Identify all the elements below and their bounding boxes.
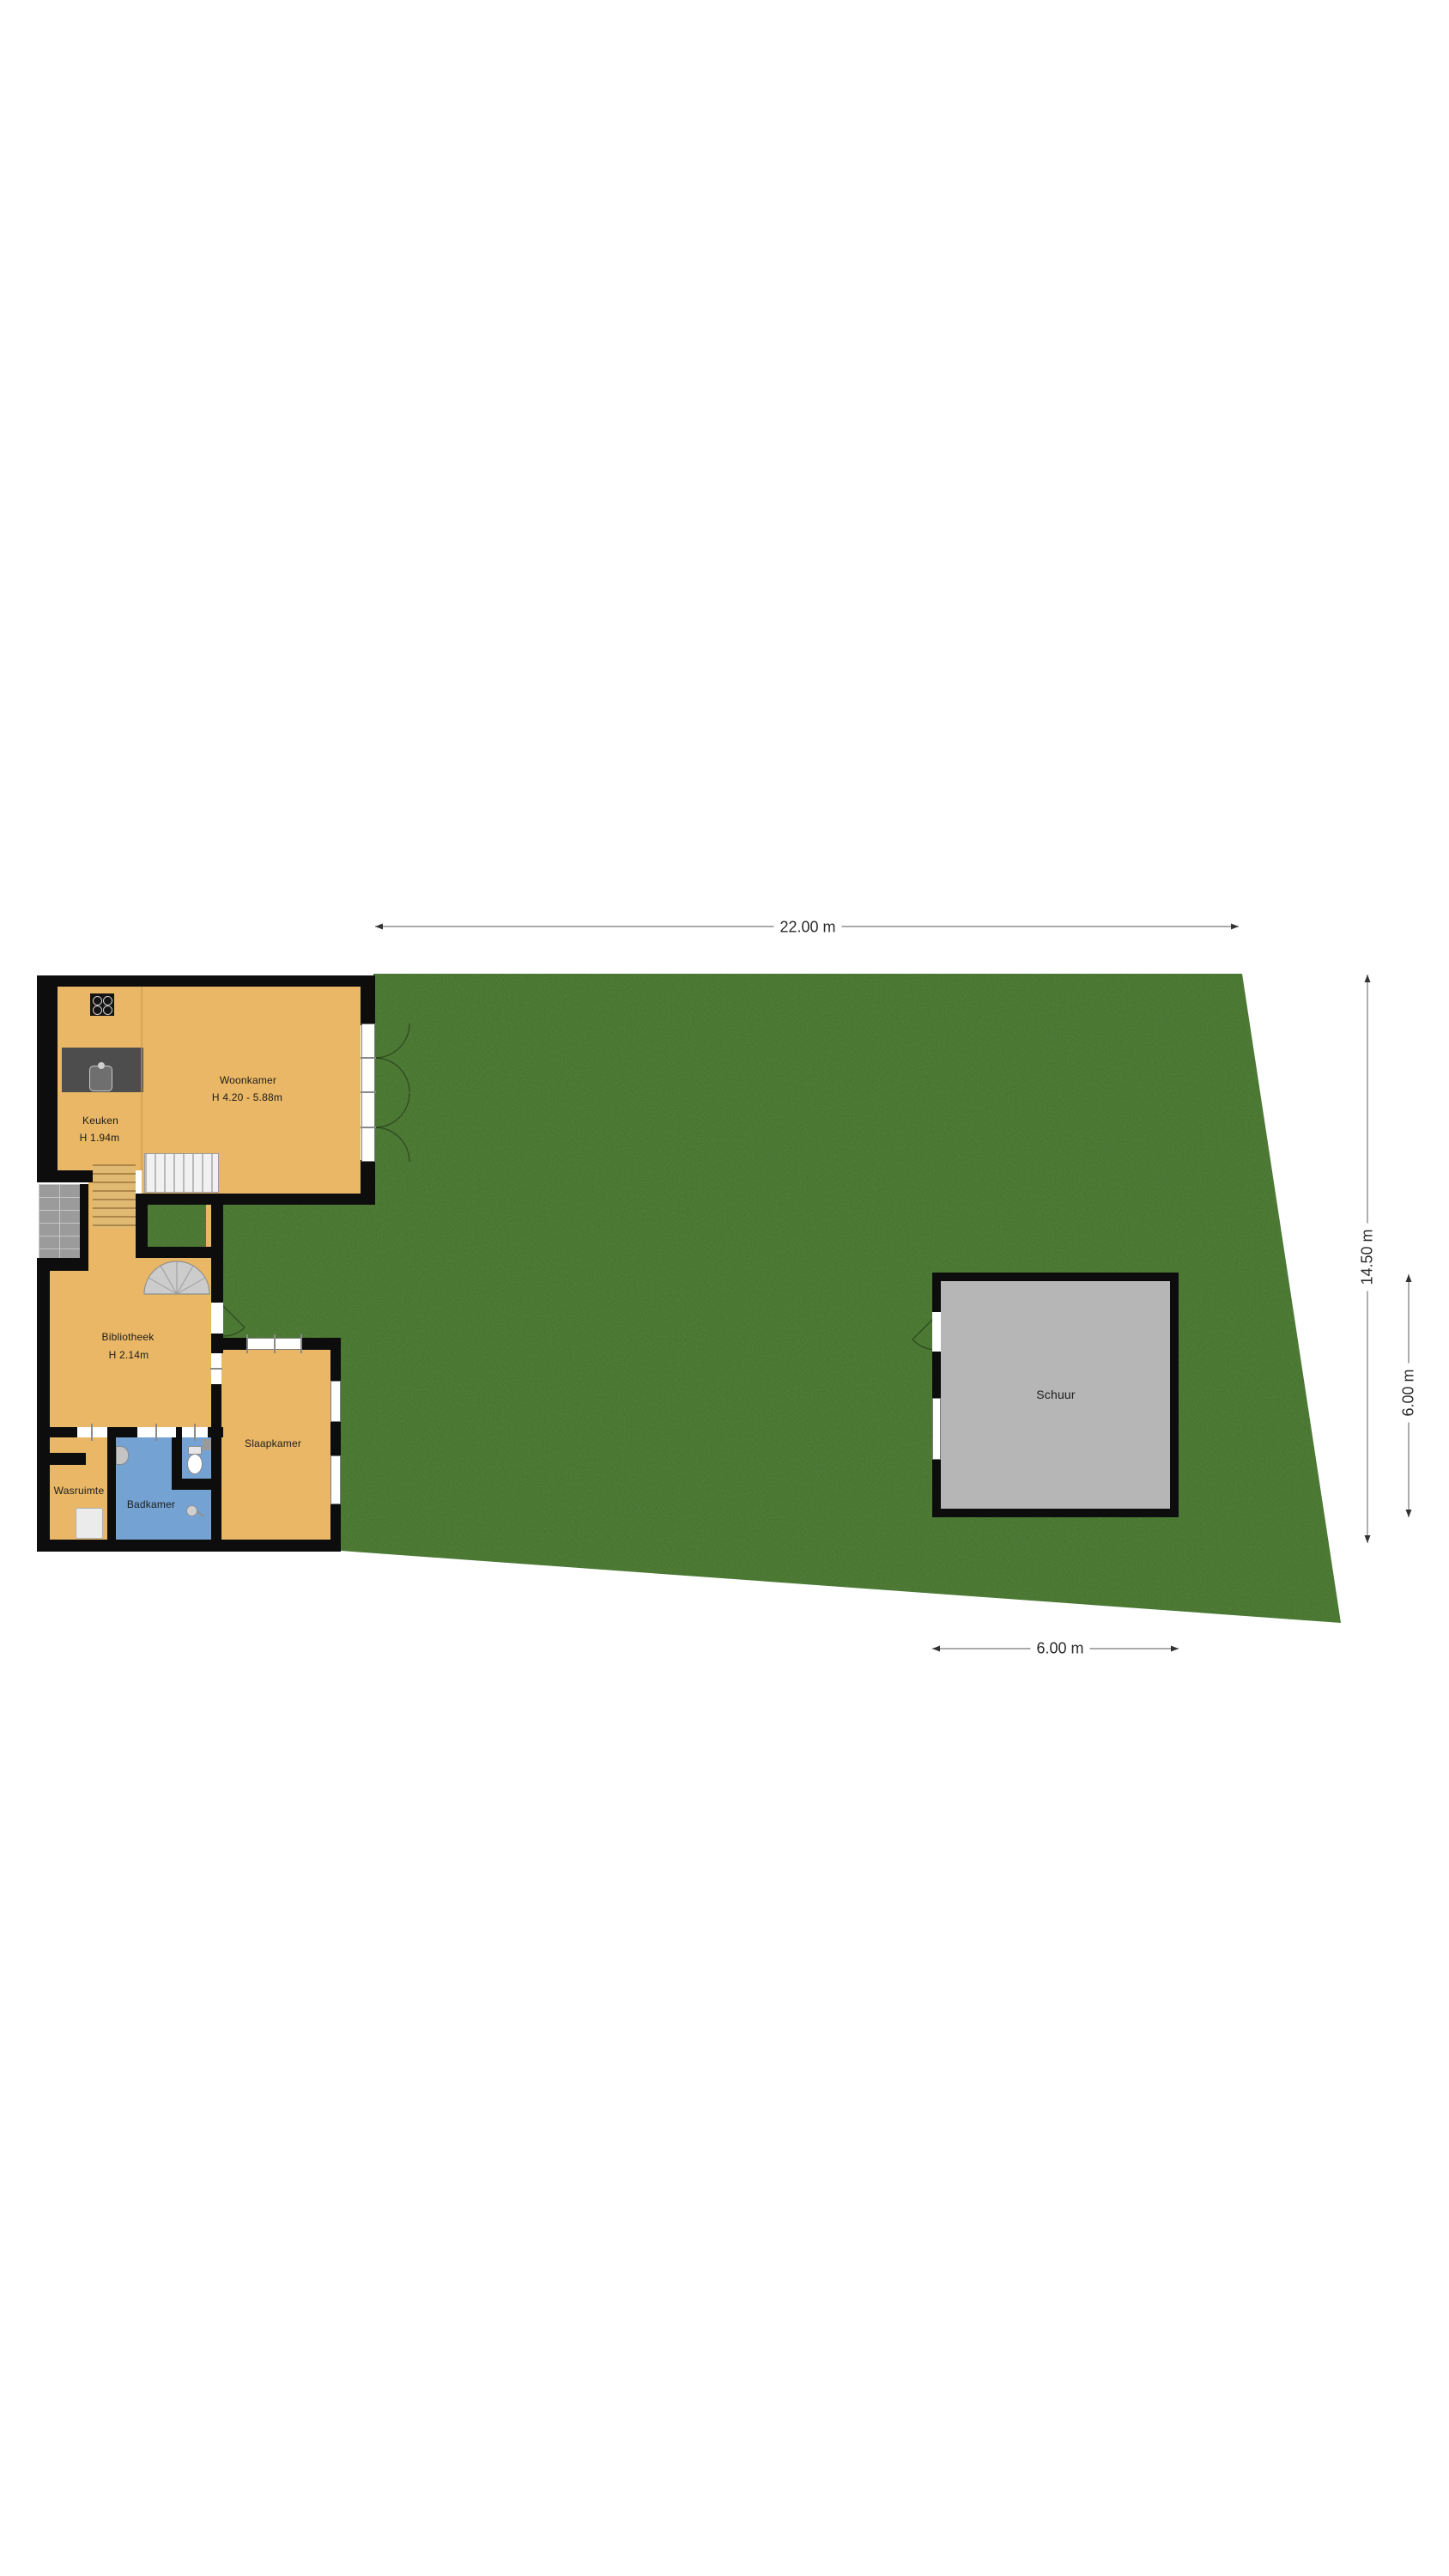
dim-schuur-width: 6.00 m	[1030, 1640, 1089, 1658]
room-height-woonkamer: H 4.20 - 5.88m	[212, 1091, 282, 1103]
sink-icon	[89, 1066, 112, 1091]
wall-wc-horizontal	[172, 1479, 211, 1490]
keuken-woonkamer-divider	[141, 987, 142, 1170]
opening-tick	[155, 1424, 157, 1441]
wall-patio-right	[80, 1184, 88, 1261]
window-mullion	[361, 1091, 376, 1093]
room-label-slaapkamer: Slaapkamer	[245, 1437, 301, 1449]
wall-keuken-bottom	[37, 1170, 93, 1182]
wall-wasruimte-stub	[49, 1453, 86, 1465]
wall-left-lower	[37, 1258, 50, 1552]
dim-plot-width: 22.00 m	[773, 919, 841, 937]
room-height-keuken: H 1.94m	[80, 1132, 120, 1144]
wall-mid-left	[136, 1194, 148, 1258]
toilet-icon	[187, 1454, 203, 1474]
dim-plot-depth: 14.50 m	[1359, 1223, 1377, 1291]
slaapkamer-right-window-a	[330, 1381, 341, 1422]
wall-wasruimte-badkamer	[107, 1437, 116, 1540]
wall-slaapkamer-right	[330, 1338, 341, 1551]
wall-woonkamer-bottom	[136, 1194, 362, 1205]
cistern-icon	[203, 1439, 211, 1450]
room-label-bibliotheek: Bibliotheek	[102, 1331, 155, 1343]
door-tick	[210, 1368, 222, 1370]
window-mullion	[361, 1127, 376, 1128]
window-mullion	[274, 1334, 276, 1353]
opening-tick	[91, 1424, 93, 1441]
room-height-bibliotheek: H 2.14m	[109, 1349, 149, 1361]
bibliotheek-garden-door	[211, 1303, 223, 1334]
schuur-door	[932, 1312, 941, 1352]
floorplan-canvas: Keuken H 1.94m Woonkamer H 4.20 - 5.88m …	[0, 0, 1449, 2576]
slaapkamer-right-window-b	[330, 1455, 341, 1504]
wall-badkamer-slaapkamer	[211, 1427, 221, 1540]
wall-left-upper	[37, 975, 58, 1182]
wall-top	[37, 975, 373, 987]
dimension-lines	[375, 927, 1409, 1649]
wall-mid-vertical-c	[211, 1384, 221, 1431]
schuur-window	[932, 1398, 941, 1460]
wall-wc-vertical	[172, 1437, 182, 1479]
wall-right-upper-a	[361, 975, 375, 1025]
window-mullion	[246, 1334, 248, 1353]
wall-block-bottom	[37, 1540, 341, 1552]
patio-bricks	[39, 1184, 80, 1258]
room-label-wasruimte: Wasruimte	[54, 1485, 105, 1497]
washer-icon	[76, 1508, 103, 1539]
straight-stair-tan	[93, 1164, 136, 1228]
room-label-badkamer: Badkamer	[127, 1498, 175, 1510]
room-label-keuken: Keuken	[82, 1115, 118, 1127]
shower-icon	[186, 1505, 197, 1516]
wall-mid-vertical-a	[211, 1205, 223, 1304]
dim-schuur-depth: 6.00 m	[1400, 1363, 1418, 1422]
window-mullion	[361, 1057, 376, 1059]
room-label-woonkamer: Woonkamer	[220, 1074, 276, 1086]
wall-right-upper-b	[361, 1160, 375, 1205]
stove-icon	[90, 993, 114, 1016]
straight-stair-white	[144, 1153, 219, 1193]
window-mullion	[300, 1334, 302, 1353]
opening-tick	[194, 1424, 196, 1441]
room-label-schuur: Schuur	[1036, 1388, 1076, 1401]
